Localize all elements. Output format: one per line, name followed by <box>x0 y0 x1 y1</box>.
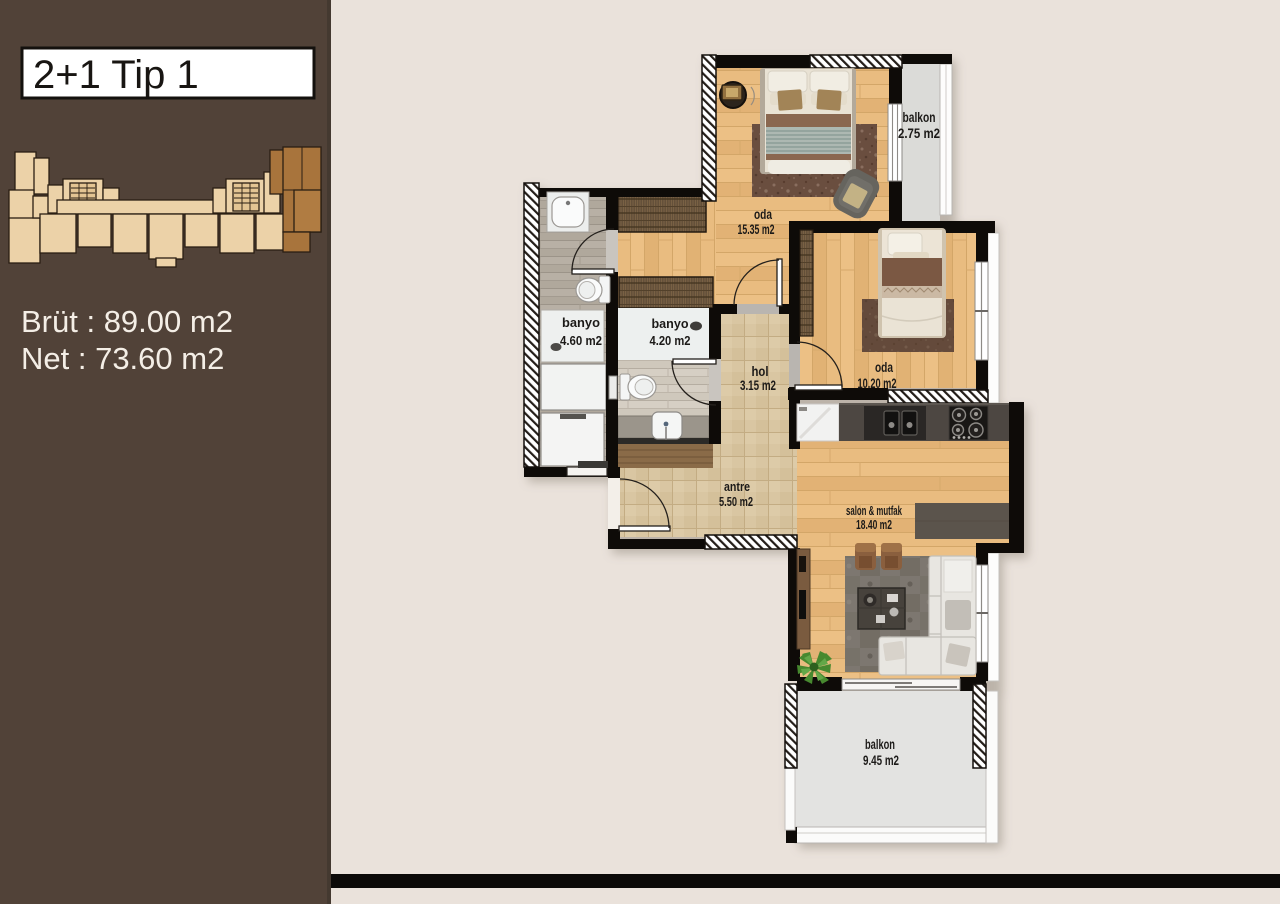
svg-text:2+1 Tip 1: 2+1 Tip 1 <box>33 53 199 97</box>
svg-text:4.20 m2: 4.20 m2 <box>650 333 691 348</box>
svg-text:banyo: banyo <box>652 316 689 331</box>
svg-text:Net : 73.60 m2: Net : 73.60 m2 <box>21 341 224 376</box>
svg-text:antre: antre <box>724 479 750 494</box>
svg-text:balkon: balkon <box>903 109 936 125</box>
svg-text:15.35 m2: 15.35 m2 <box>738 221 775 237</box>
svg-text:salon & mutfak: salon & mutfak <box>846 503 902 518</box>
svg-text:4.60 m2: 4.60 m2 <box>560 333 602 348</box>
svg-text:9.45 m2: 9.45 m2 <box>863 752 899 768</box>
svg-text:2.75 m2: 2.75 m2 <box>898 125 940 141</box>
svg-text:3.15 m2: 3.15 m2 <box>740 377 776 393</box>
svg-text:10.20 m2: 10.20 m2 <box>858 375 897 391</box>
svg-text:Brüt : 89.00 m2: Brüt : 89.00 m2 <box>21 304 233 339</box>
svg-text:18.40 m2: 18.40 m2 <box>856 517 892 532</box>
svg-text:5.50 m2: 5.50 m2 <box>719 494 753 509</box>
svg-text:balkon: balkon <box>865 736 895 752</box>
svg-text:oda: oda <box>754 206 772 222</box>
svg-text:oda: oda <box>875 359 893 375</box>
svg-text:banyo: banyo <box>562 315 600 330</box>
